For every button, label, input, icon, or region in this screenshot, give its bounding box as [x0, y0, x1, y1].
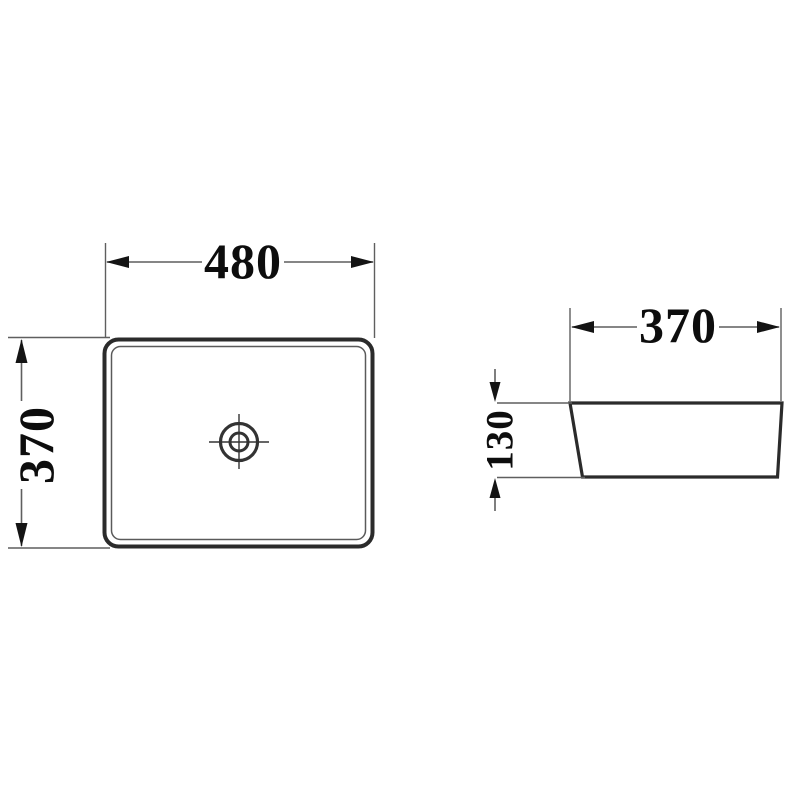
dimension-label-side-height: 130: [481, 407, 520, 473]
arrowhead-down-icon: [16, 523, 28, 547]
top-view: [105, 340, 373, 547]
dimension-label-top-height: 370: [11, 404, 61, 486]
arrowhead-down-icon: [490, 382, 501, 402]
drawing-linework: [0, 0, 800, 800]
side-view-profile: [570, 403, 782, 477]
dimension-label-side-width: 370: [637, 300, 719, 350]
dimension-label-top-width: 480: [202, 236, 284, 286]
arrowhead-up-icon: [16, 339, 28, 363]
technical-drawing-canvas: 480 370 370 130: [0, 0, 800, 800]
arrowhead-right-icon: [351, 256, 374, 268]
side-view: [570, 403, 782, 477]
arrowhead-up-icon: [490, 478, 501, 498]
arrowhead-right-icon: [757, 321, 780, 333]
arrowhead-left-icon: [571, 321, 594, 333]
arrowhead-left-icon: [106, 256, 129, 268]
